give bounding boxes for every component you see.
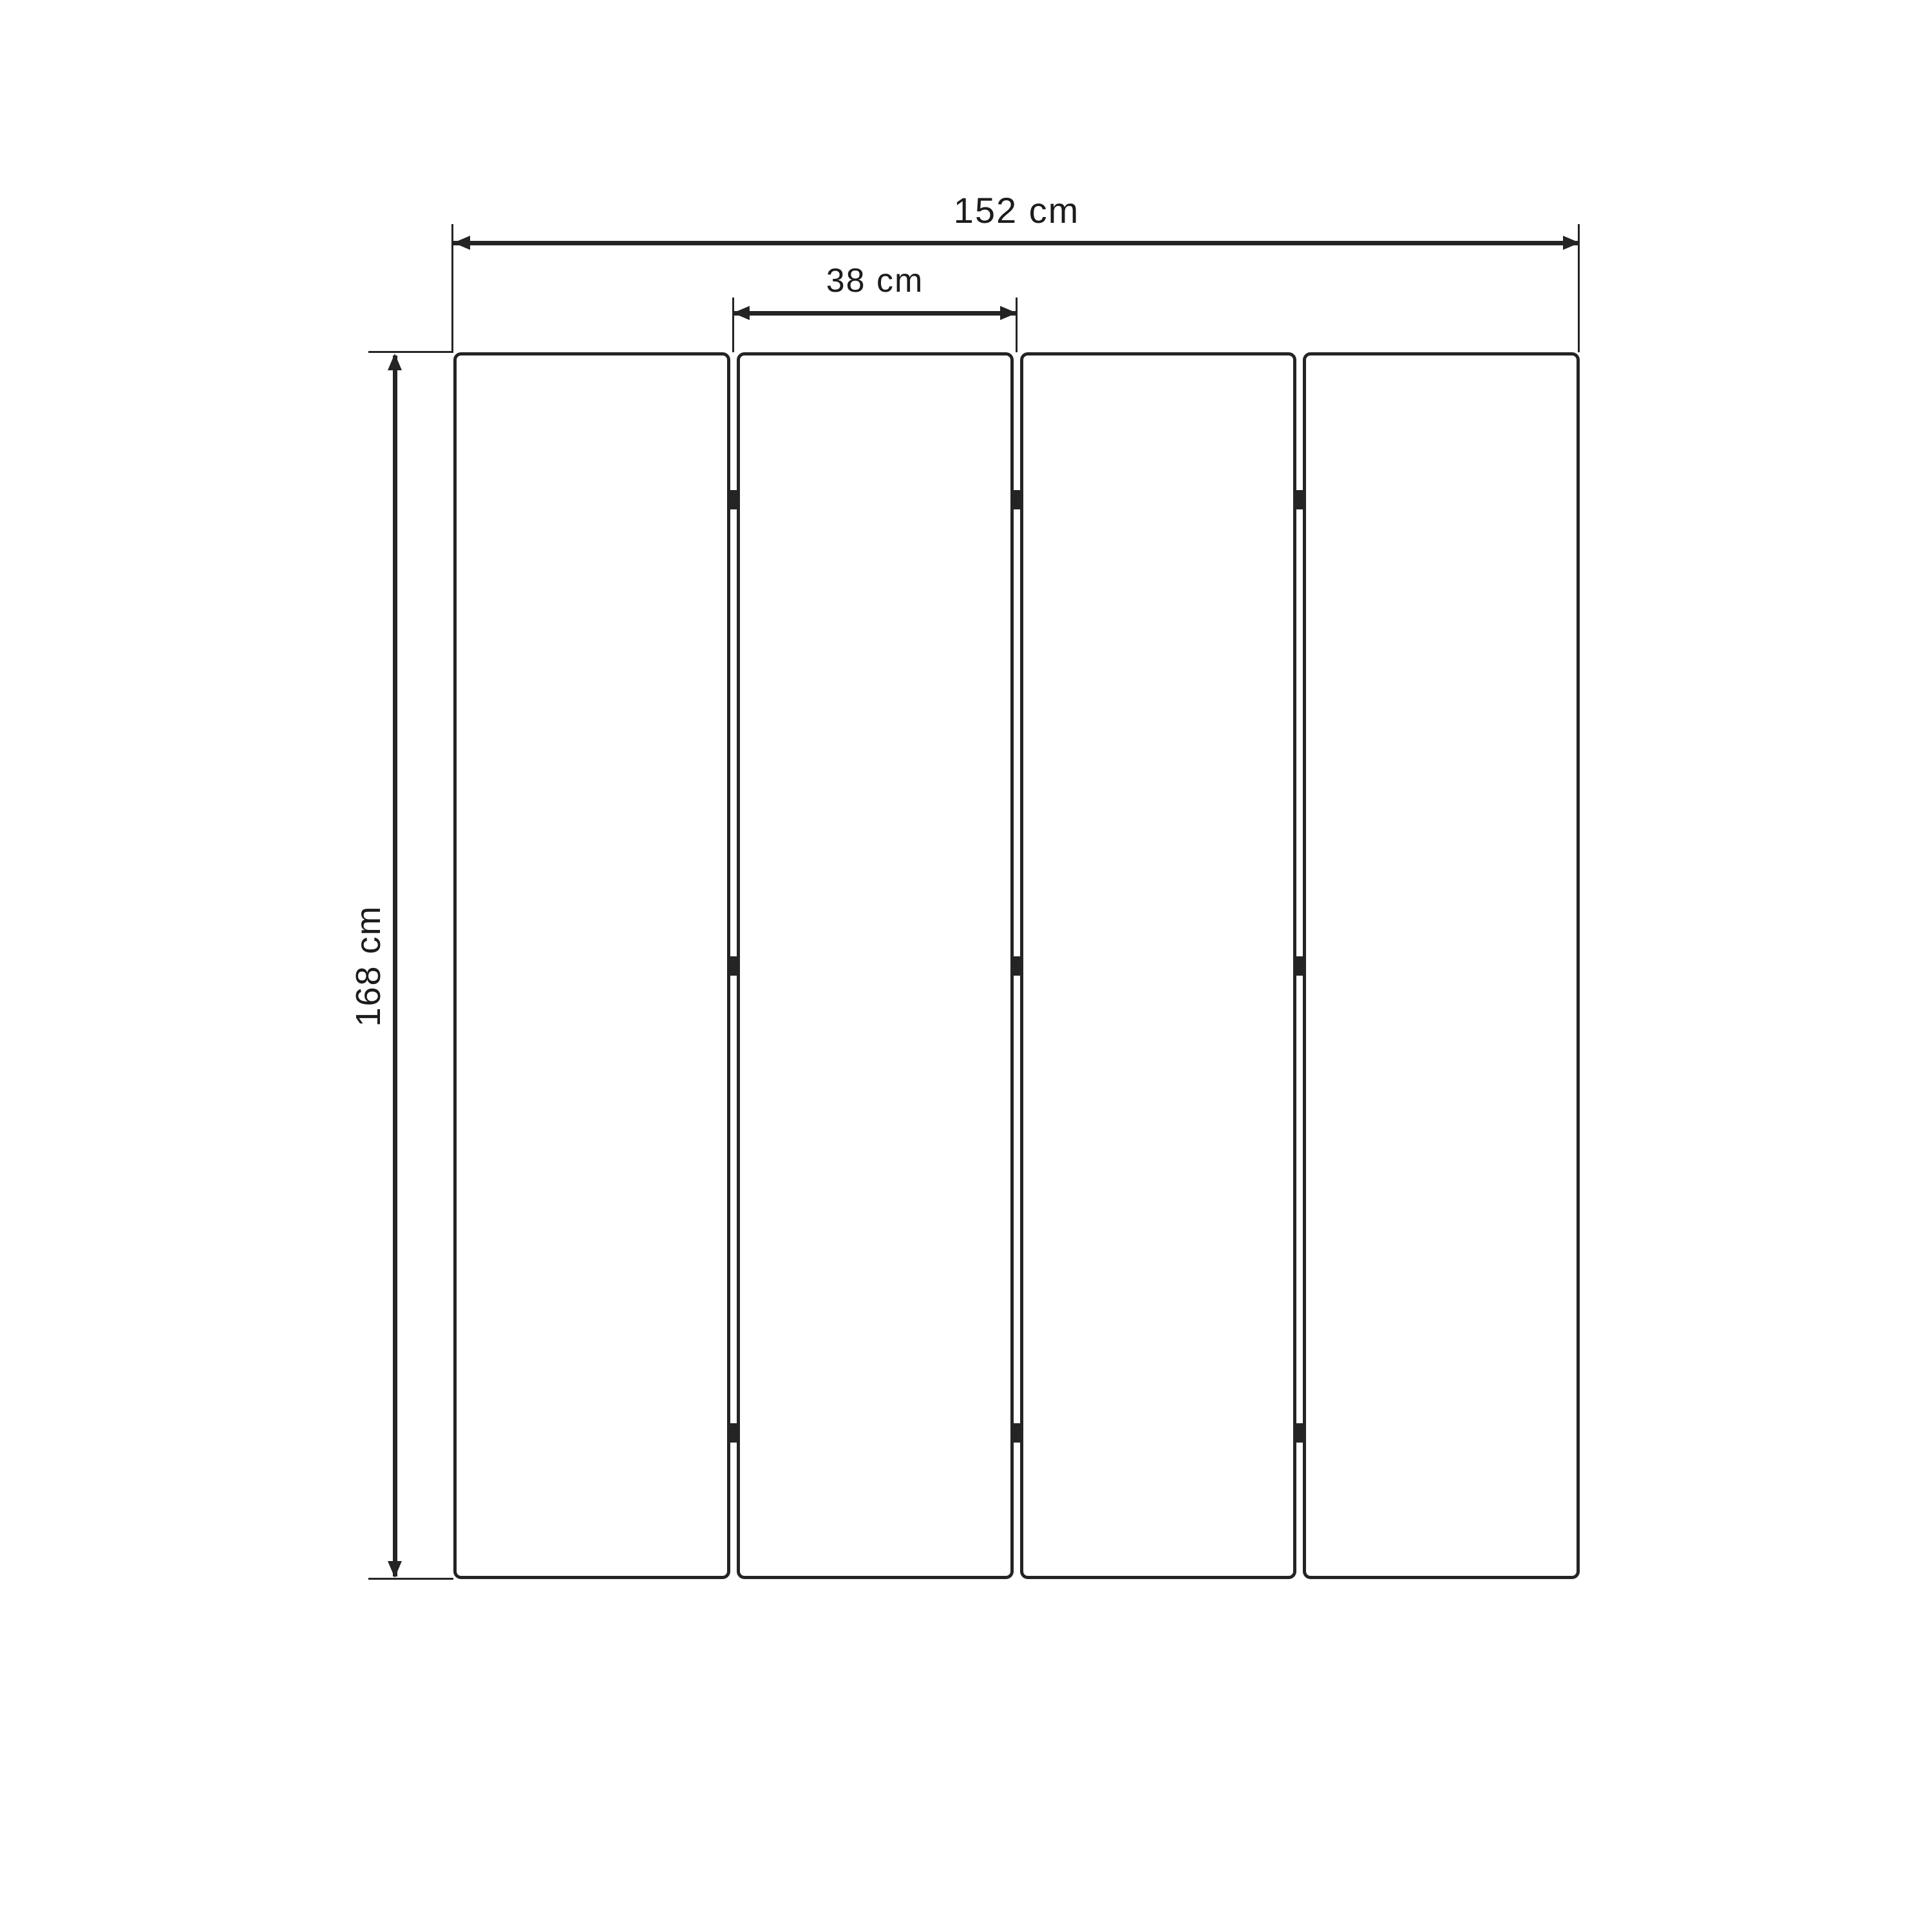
arrowhead-down-icon (388, 1561, 402, 1578)
height-extension-line-top (368, 351, 453, 353)
total-width-dim-line (453, 241, 1580, 245)
arrowhead-right-icon (1000, 306, 1017, 320)
hinge-mark (1296, 956, 1304, 976)
panel-4 (1303, 352, 1580, 1579)
total-width-extension-line-right (1578, 224, 1580, 352)
panel-1 (453, 352, 730, 1579)
diagram-canvas: 152 cm 38 cm 168 cm (0, 0, 1932, 1932)
hinge-mark (1012, 1423, 1021, 1443)
panel-width-label: 38 cm (733, 263, 1017, 299)
hinge-mark (729, 956, 737, 976)
hinge-mark (1012, 956, 1021, 976)
hinge-mark (729, 490, 737, 509)
total-width-label: 152 cm (453, 191, 1580, 231)
panel-2 (737, 352, 1014, 1579)
panel-width-dim-line (733, 311, 1017, 316)
total-width-extension-line-left (451, 224, 453, 352)
height-extension-line-bottom (368, 1578, 453, 1580)
hinge-mark (1296, 490, 1304, 509)
panel-width-extension-line-right (1016, 298, 1018, 352)
hinge-mark (1012, 490, 1021, 509)
arrowhead-up-icon (388, 354, 402, 370)
hinge-mark (729, 1423, 737, 1443)
height-dim-line (393, 355, 397, 1577)
hinge-mark (1296, 1423, 1304, 1443)
arrowhead-left-icon (453, 236, 470, 250)
arrowhead-left-icon (733, 306, 750, 320)
panel-width-extension-line-left (732, 298, 734, 352)
height-label: 168 cm (349, 889, 388, 1043)
panel-3 (1020, 352, 1297, 1579)
